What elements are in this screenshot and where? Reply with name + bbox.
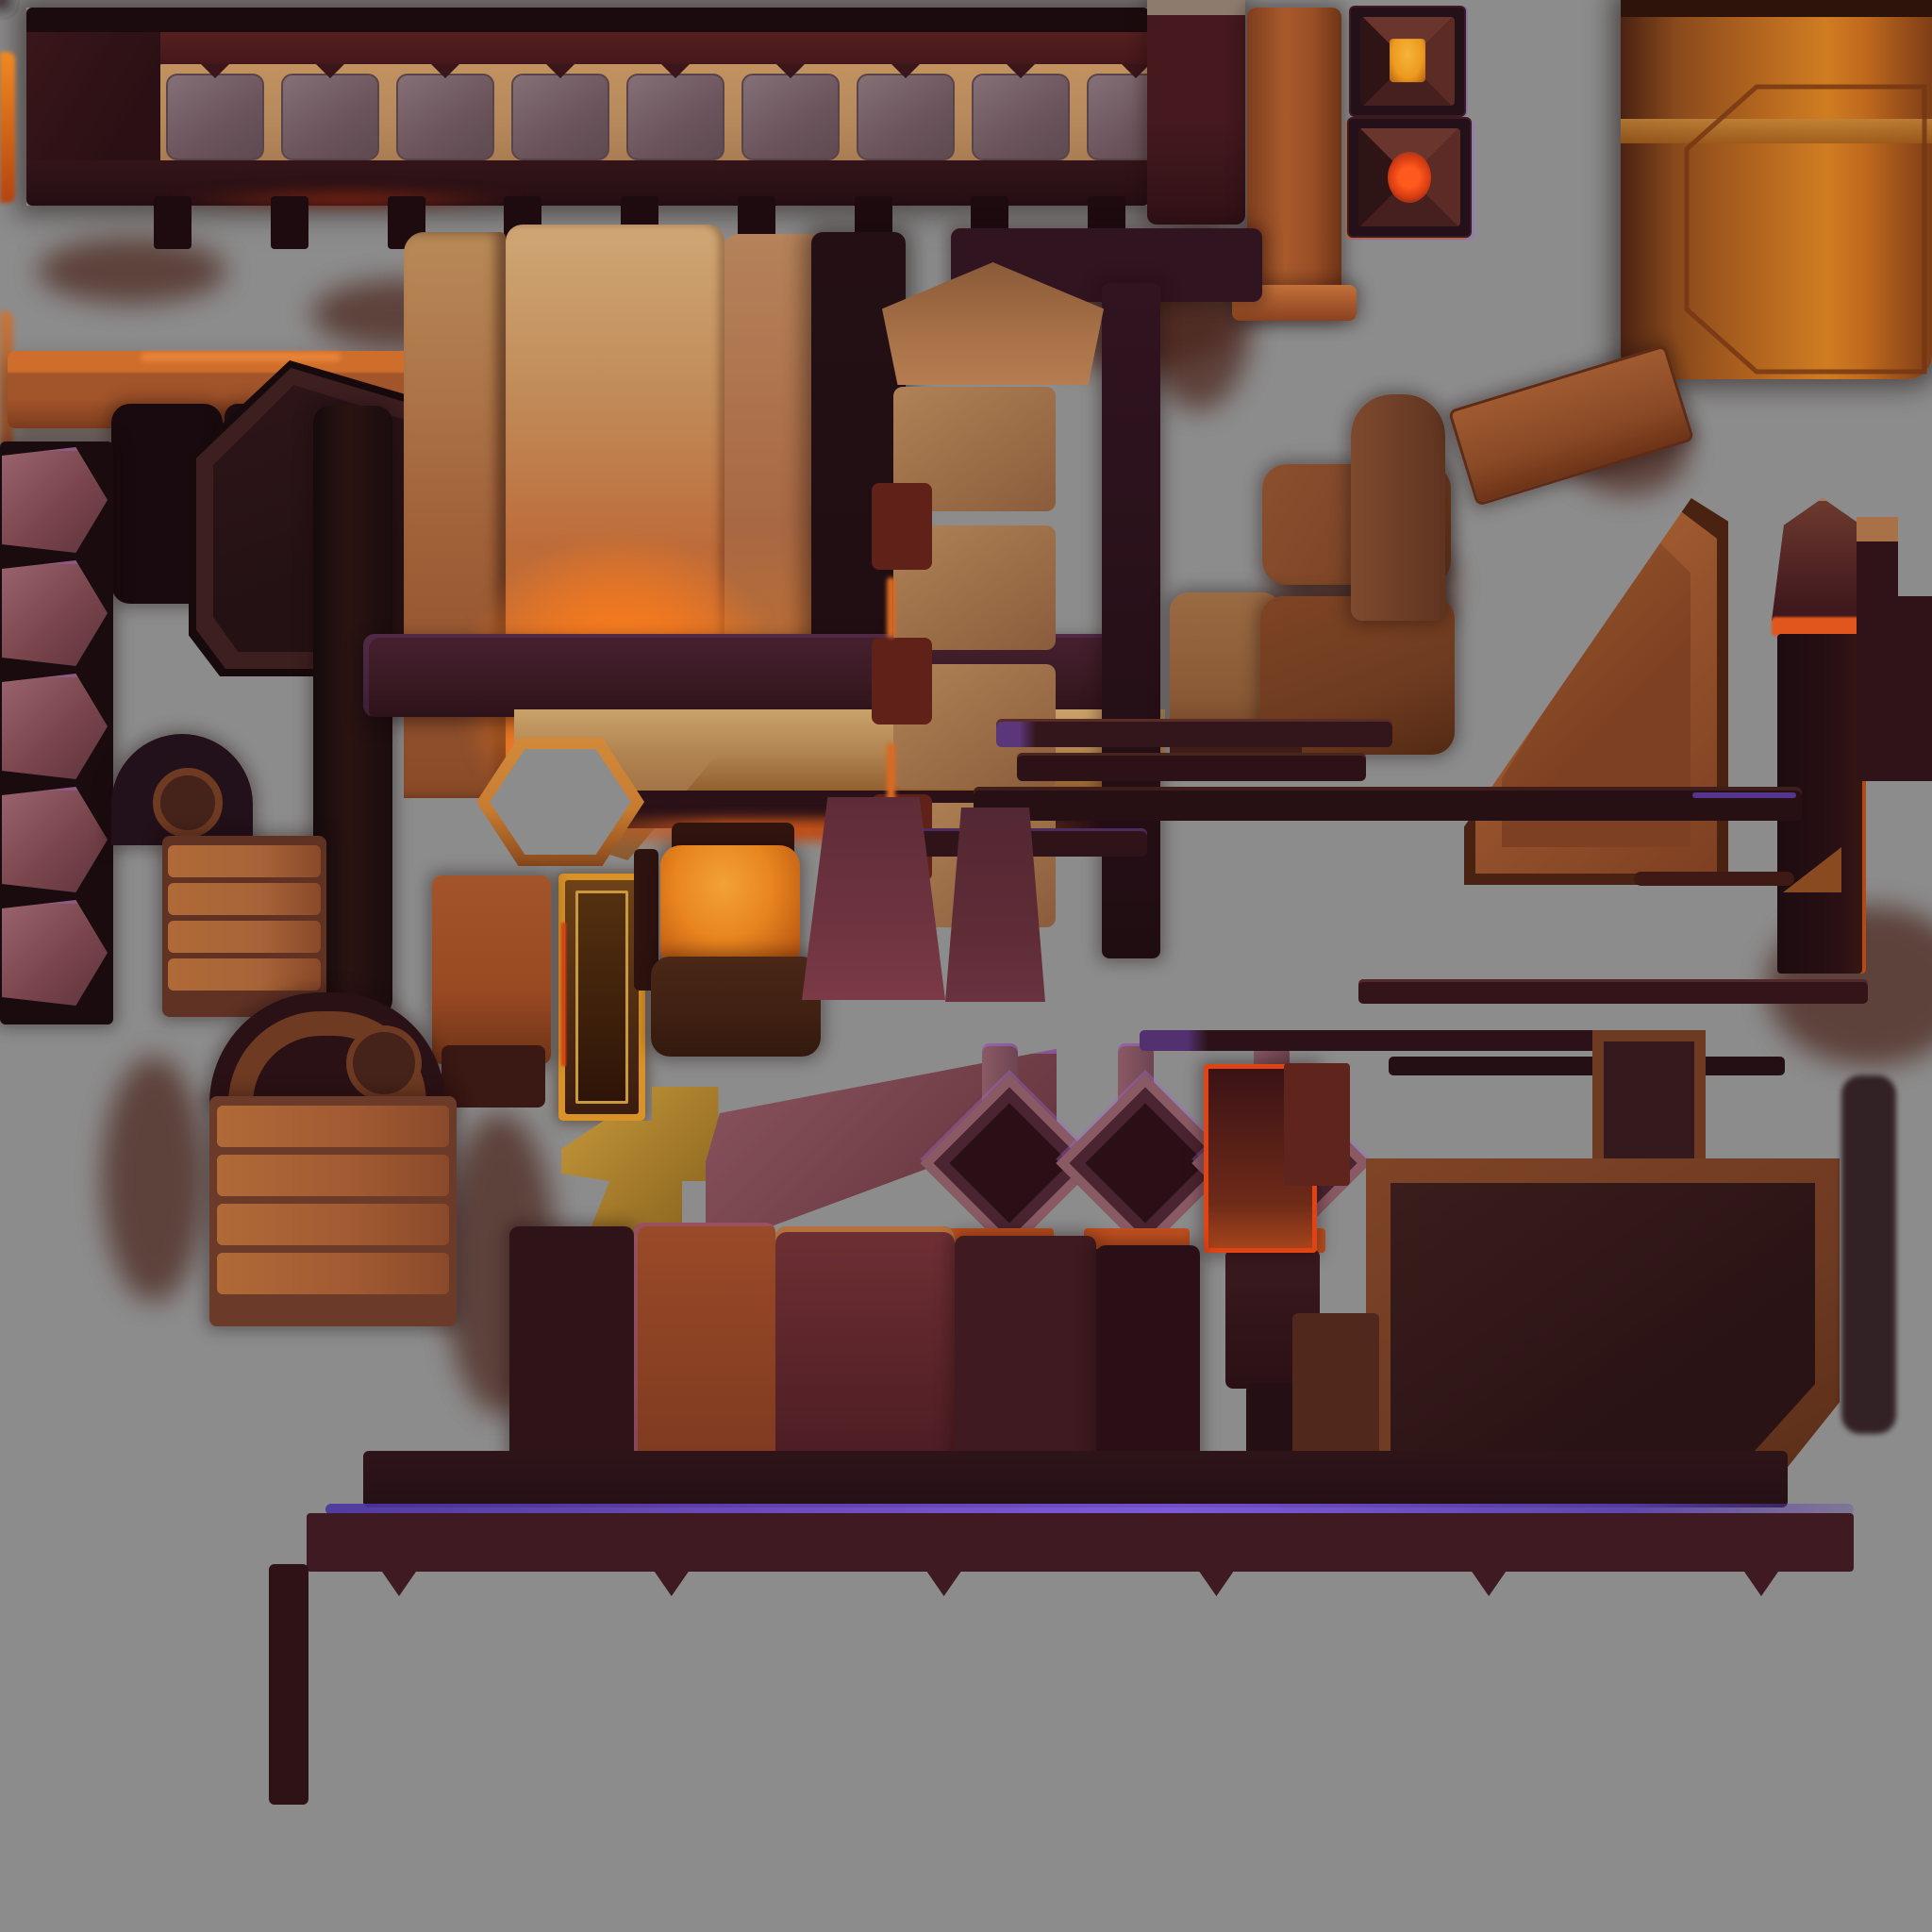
pillar-notch <box>872 638 932 724</box>
t-beam-vertical <box>1102 283 1160 958</box>
beam-end-cap <box>1147 0 1245 225</box>
block-row-item <box>955 1236 1096 1472</box>
stepped-panel <box>1366 1158 1840 1479</box>
stone-panel <box>396 74 494 160</box>
smudge-blob <box>102 1057 206 1302</box>
beam-stone-panel-track <box>158 64 1160 174</box>
stone-panel <box>511 74 609 160</box>
bottom-stone-panel-track <box>283 1574 1840 1792</box>
lamp-tile-amber <box>1349 6 1466 117</box>
stepped-panel-face <box>1391 1183 1815 1455</box>
stone-panel <box>281 74 379 160</box>
hanging-post <box>154 196 192 249</box>
canister-base <box>651 957 821 1057</box>
rod-plank <box>1017 753 1366 781</box>
flag-rod <box>1634 872 1794 886</box>
arch-hub <box>346 1025 422 1101</box>
barrel-top-edge <box>1621 0 1932 17</box>
plank-stack <box>162 836 326 1017</box>
chevron-shield-segment <box>2 900 108 1006</box>
block-row-item <box>775 1226 955 1476</box>
lamp-amber-core <box>1390 39 1425 82</box>
block-row-item <box>1096 1245 1200 1467</box>
barrel-octagon-inset <box>1683 83 1928 375</box>
block-row-item <box>509 1226 634 1462</box>
chevron-strip <box>0 441 113 1024</box>
top-trim-beam <box>26 8 1149 206</box>
chevron-shield-segment <box>2 560 108 666</box>
stack-slat <box>168 845 321 877</box>
thin-rail <box>1140 1030 1668 1051</box>
stone-panel <box>741 74 840 160</box>
slat-crate <box>209 1096 457 1326</box>
stone-panel <box>972 74 1070 160</box>
lamp-ember-core <box>1388 152 1431 203</box>
crate-slat <box>217 1204 449 1245</box>
bottom-beam-top-bar <box>363 1451 1788 1507</box>
block-row-item <box>634 1223 775 1468</box>
stone-panel <box>857 74 955 160</box>
chevron-shield-segment <box>2 674 108 779</box>
curved-handle-bar <box>1351 394 1445 621</box>
rust-panel-base <box>441 1045 545 1108</box>
stone-panel <box>166 74 264 160</box>
rust-panel <box>432 875 551 1064</box>
crate-slat <box>217 1106 449 1147</box>
stack-slat <box>168 883 321 915</box>
chevron-shield-segment <box>2 787 108 892</box>
pillar-ember-tick <box>887 743 895 804</box>
pillar-ember-tick <box>887 577 895 638</box>
gold-bar-inner-frame <box>575 891 628 1104</box>
thin-rail <box>1389 1057 1785 1075</box>
thin-rail <box>1358 979 1868 1004</box>
orange-frame-red <box>1204 1064 1317 1253</box>
texture-atlas-canvas <box>0 0 1932 1932</box>
gold-frame-bar <box>558 874 645 1121</box>
obelisk-side-arm <box>1857 517 1932 781</box>
edge-flame-strip <box>0 52 15 203</box>
bottom-maroon-band <box>307 1513 1854 1572</box>
chevron-shield-segment <box>2 447 108 553</box>
stack-slat <box>168 958 321 991</box>
rod-plank-long <box>974 787 1802 821</box>
barrel-pillar <box>1621 0 1932 379</box>
crate-slat <box>217 1253 449 1294</box>
lamp-tile-ember <box>1347 117 1472 238</box>
hex-ring-hole <box>490 749 631 855</box>
hanging-post <box>271 196 308 249</box>
ramp-wedge <box>1464 498 1728 885</box>
stack-slat <box>168 921 321 953</box>
pulley-half <box>111 734 253 845</box>
stepped-panel-shadow-bar <box>1841 1075 1896 1434</box>
glow-canister <box>660 845 800 970</box>
stone-panel <box>626 74 724 160</box>
curtain-trapezoid <box>945 808 1045 1002</box>
crate-slat <box>217 1155 449 1196</box>
rod-plank <box>996 719 1392 747</box>
bottom-trim-beam <box>269 1451 1854 1899</box>
pillar-notch <box>872 483 932 570</box>
stepped-panel-ledge <box>1292 1313 1379 1474</box>
